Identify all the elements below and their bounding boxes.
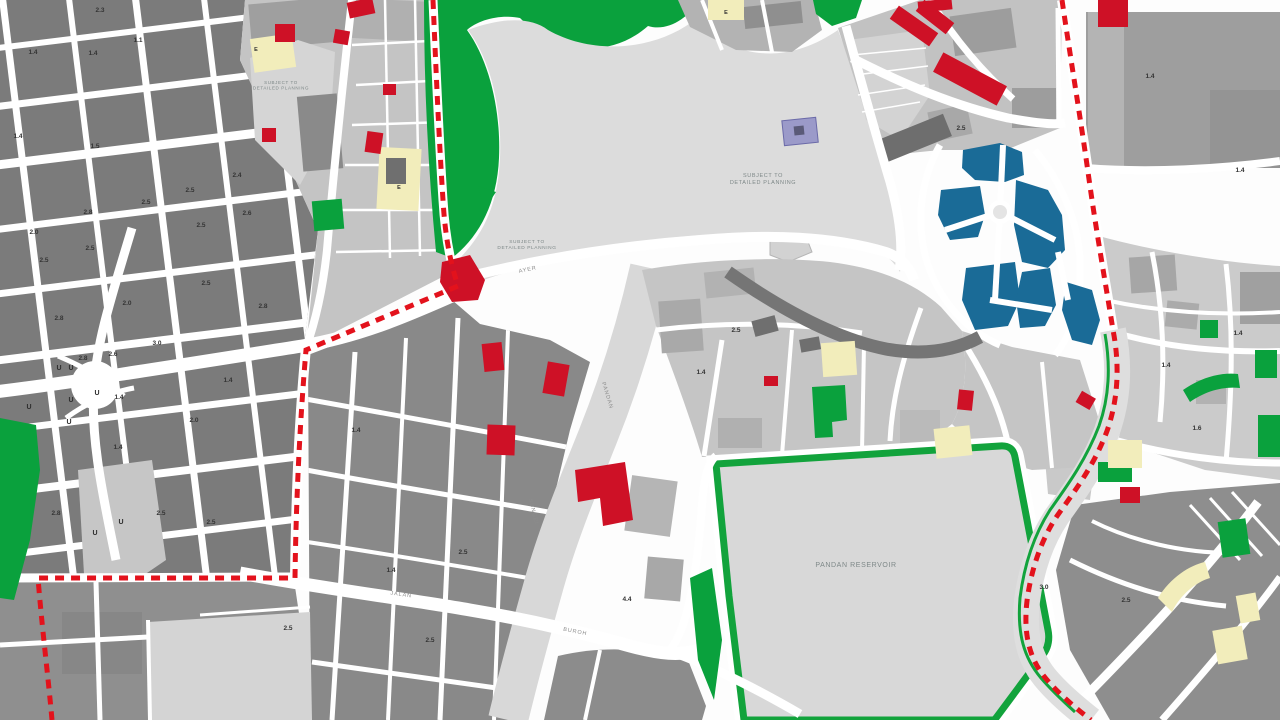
plot-ratio-label: 2.5 [1121,597,1130,604]
plot-ratio-label: 1.4 [88,50,97,57]
plot-ratio-label: 1.4 [223,377,232,384]
plot-ratio-label: 2.8 [83,209,92,216]
utility-label: U [92,530,97,537]
plot-ratio-label: 2.5 [458,549,467,556]
plot-ratio-label: 3.0 [152,340,161,347]
plot-ratio-label: 2.5 [206,519,215,526]
pandan-reservoir-label: PANDAN RESERVOIR [815,562,896,569]
plot-ratio-label: 2.3 [95,7,104,14]
plot-ratio-label: 1.1 [133,37,142,44]
plot-ratio-label: 2.5 [185,187,194,194]
utility-label: U [66,419,71,426]
plot-ratio-label: 2.5 [196,222,205,229]
utility-label: U [118,519,123,526]
plot-ratio-label: 2.8 [78,355,87,362]
plot-ratio-label: 2.5 [283,625,292,632]
parcel-far-northeast [1086,12,1280,170]
plot-ratio-label: 2.8 [54,315,63,322]
school-building [386,158,406,184]
plot-ratio-label: 2.5 [956,125,965,132]
plot-ratio-label: 2.6 [242,210,251,217]
plot-ratio-label: 1.4 [351,427,360,434]
plot-ratio-label: 1.4 [1145,73,1154,80]
utility-label: U [68,365,73,372]
plot-ratio-label: 1.4 [386,567,395,574]
plot-ratio-label: 2.0 [189,417,198,424]
civic-parcel-purple [782,117,818,145]
plot-ratio-label: 2.5 [425,637,434,644]
utility-label: U [26,404,31,411]
plot-ratio-label: 2.0 [29,229,38,236]
plot-ratio-label: 2.5 [201,280,210,287]
plot-ratio-label: 1.4 [113,444,122,451]
map-stage: SUBJECT TODETAILED PLANNINGSUBJECT TODET… [0,0,1280,720]
plot-ratio-label: 3.0 [1039,584,1048,591]
plot-ratio-label: 1.4 [1161,362,1170,369]
plot-ratio-label: 2.5 [85,245,94,252]
institution-label: E [724,10,728,16]
utility-label: U [94,390,99,397]
utility-label: U [56,365,61,372]
plot-ratio-label: 1.4 [1235,167,1244,174]
plot-ratio-label: 1.4 [696,369,705,376]
plot-ratio-label: 2.5 [156,510,165,517]
plot-ratio-label: 2.4 [232,172,241,179]
plot-ratio-label: 2.6 [108,351,117,358]
plot-ratio-label: 1.4 [114,394,123,401]
plot-ratio-label: 1.4 [28,49,37,56]
institution-label: E [397,185,401,191]
institution-label: E [254,47,258,53]
reservoir-water [716,446,1049,720]
plot-ratio-label: 4.4 [622,596,631,603]
plot-ratio-label: 1.4 [13,133,22,140]
plot-ratio-label: 2.5 [141,199,150,206]
plot-ratio-label: 2.5 [731,327,740,334]
zoning-map: SUBJECT TODETAILED PLANNINGSUBJECT TODET… [0,0,1280,720]
pandan-reservoir [716,446,1049,720]
plot-ratio-label: 2.5 [39,257,48,264]
plot-ratio-label: 1.6 [1192,425,1201,432]
plot-ratio-label: 2.0 [122,300,131,307]
plot-ratio-label: 1.5 [90,143,99,150]
utility-label: U [68,397,73,404]
plot-ratio-label: 2.8 [51,510,60,517]
plot-ratio-label: 2.8 [258,303,267,310]
plot-ratio-label: 1.4 [1233,330,1242,337]
